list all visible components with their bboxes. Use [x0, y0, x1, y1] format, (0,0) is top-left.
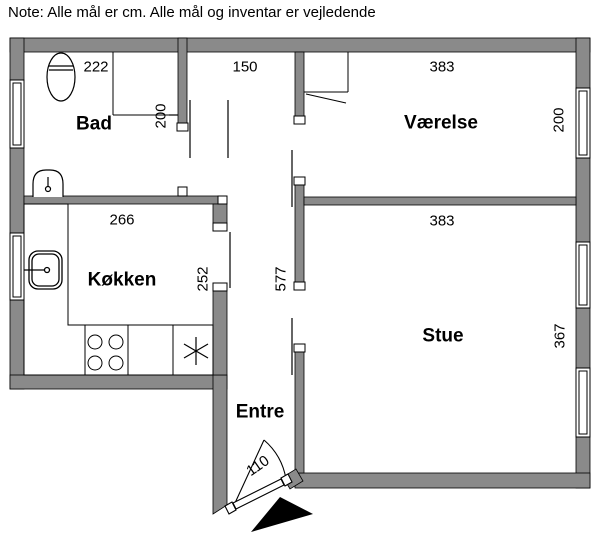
dim-vaerelse-depth: 200: [552, 107, 567, 132]
closet-door-line: [306, 94, 346, 103]
burner: [109, 356, 123, 370]
toilet-icon: [47, 53, 75, 101]
vaerelse-window-icon: [576, 88, 590, 158]
dim-bad-depth: 200: [154, 103, 169, 128]
stue-room-label: Stue: [422, 327, 463, 346]
stue-window-2-icon: [576, 368, 590, 437]
dim-hall-length: 577: [274, 266, 289, 291]
kitchen-hall-wall-upper: [213, 204, 227, 223]
bad-window-icon: [10, 80, 24, 148]
wall-end-cap: [218, 196, 227, 204]
koekken-room-label: Køkken: [88, 271, 157, 290]
hall-right-wall-mid: [295, 185, 304, 282]
burner: [109, 335, 123, 349]
stue-bottom-wall: [295, 473, 590, 488]
burner: [88, 335, 102, 349]
dim-stue-width: 383: [429, 214, 454, 229]
entre-room-label: Entre: [236, 403, 285, 422]
entrance-arrow-icon: [251, 497, 313, 532]
bad-room-label: Bad: [76, 115, 112, 134]
hall-right-wall-upper: [295, 52, 304, 116]
burner: [88, 356, 102, 370]
bad-kitchen-wall: [24, 196, 227, 204]
entre-left-wall: [213, 375, 227, 514]
wall-end-cap: [213, 223, 227, 231]
vaerelse-stue-divider-wall: [304, 197, 576, 205]
dim-koekken-depth: 252: [196, 266, 211, 291]
vaerelse-room-label: Værelse: [404, 114, 478, 133]
wall-end-cap: [294, 177, 305, 185]
stue-window-1-icon: [576, 242, 590, 308]
hall-right-wall-lower: [295, 352, 304, 473]
wall-end-cap: [177, 123, 188, 131]
wall-end-cap: [178, 187, 187, 196]
kitchen-hall-wall-lower: [213, 291, 227, 375]
dim-vaerelse-width: 383: [429, 60, 454, 75]
bad-right-wall: [178, 38, 187, 123]
floor-plan: Note: Alle mål er cm. Alle mål og invent…: [0, 0, 600, 538]
dim-bad-width: 222: [83, 60, 108, 75]
dim-hall-top-width: 150: [232, 60, 257, 75]
wall-end-caps: [177, 116, 305, 352]
dim-koekken-width: 266: [109, 213, 134, 228]
wall-end-cap: [294, 344, 305, 352]
wall-end-cap: [294, 282, 305, 290]
wall-end-cap: [294, 116, 305, 124]
kitchen-sink-icon: [24, 251, 62, 289]
vaerelse-closet-outline: [304, 52, 348, 103]
washbasin-icon: [33, 170, 63, 197]
kitchen-bottom-wall: [10, 375, 227, 389]
kitchen-window-icon: [10, 233, 24, 300]
wall-end-cap: [213, 283, 227, 291]
dim-stue-depth: 367: [553, 323, 568, 348]
top-wall: [10, 38, 590, 52]
